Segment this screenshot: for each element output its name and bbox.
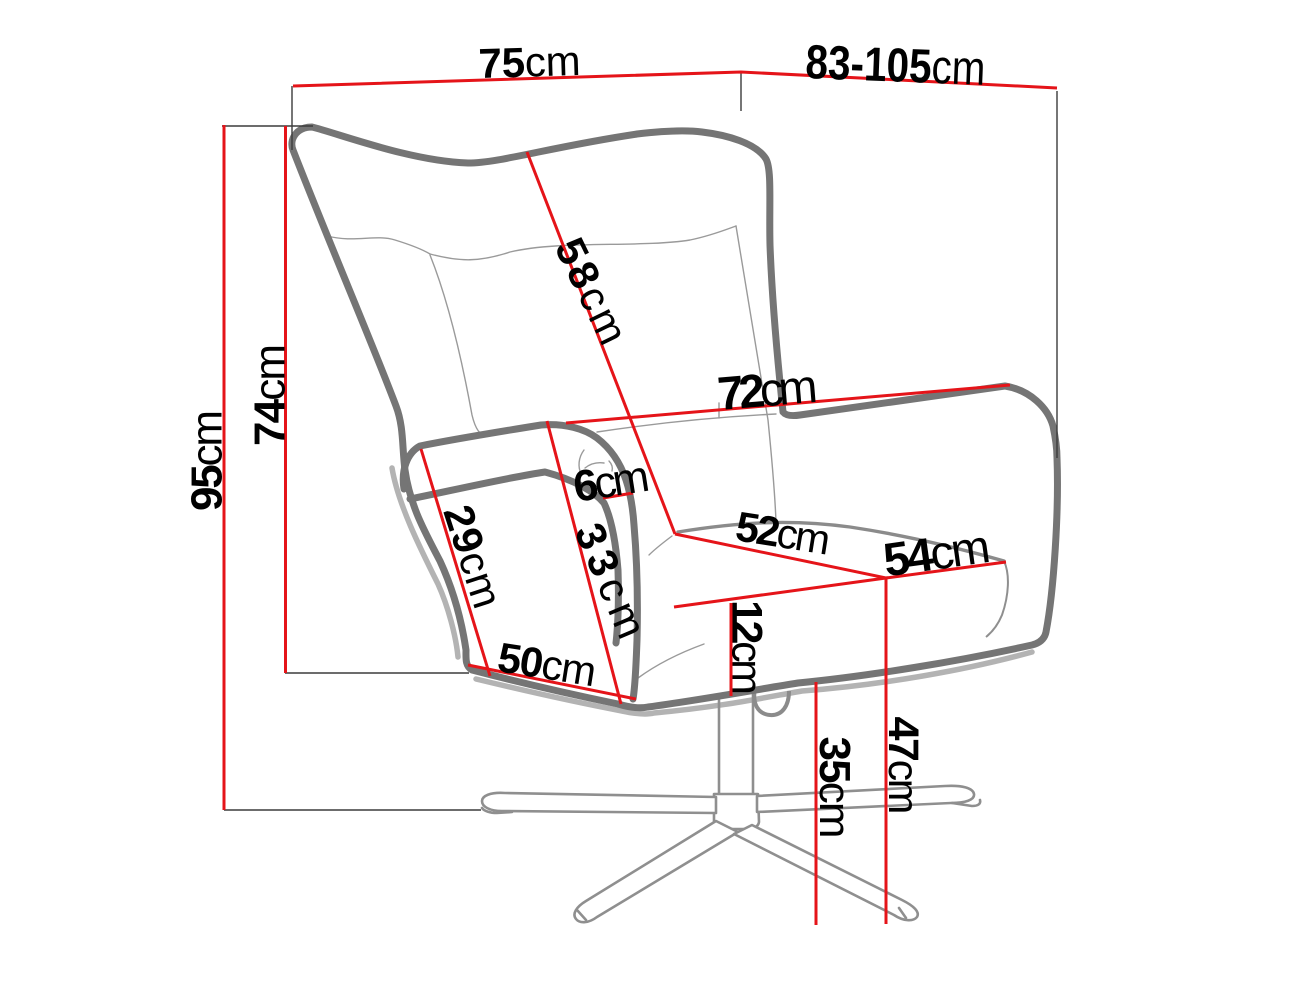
svg-text:95cm: 95cm (183, 410, 232, 511)
svg-text:83-105cm: 83-105cm (805, 36, 987, 96)
svg-text:35cm: 35cm (810, 737, 859, 839)
svg-text:75cm: 75cm (478, 37, 581, 87)
svg-text:12cm: 12cm (723, 600, 771, 695)
svg-text:47cm: 47cm (879, 717, 927, 815)
svg-text:72cm: 72cm (715, 359, 819, 420)
svg-text:74cm: 74cm (246, 344, 295, 446)
